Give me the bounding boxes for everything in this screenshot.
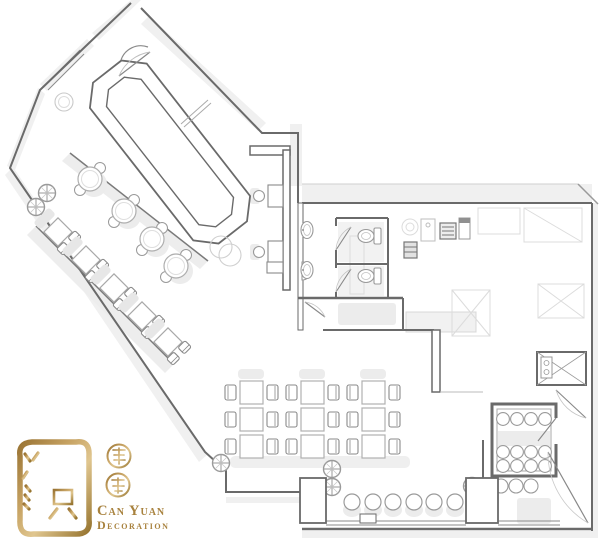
- medallion-glyphs: [107, 445, 131, 497]
- dining-set: [225, 381, 278, 404]
- bar-stool: [425, 494, 443, 517]
- dining-set: [347, 435, 400, 458]
- bar-stool: [446, 494, 464, 517]
- bar-stool: [343, 494, 361, 517]
- dining-set: [286, 408, 339, 431]
- dining-set: [347, 381, 400, 404]
- dining-set: [347, 408, 400, 431]
- toilet-icon: [358, 268, 381, 284]
- dining-set: [225, 435, 278, 458]
- toilet-icon: [358, 228, 381, 244]
- dining-set: [286, 435, 339, 458]
- dining-set: [286, 381, 339, 404]
- sink-icon: [301, 262, 313, 279]
- range-icon: [440, 223, 456, 239]
- brand-logo: Can Yuan Decoration 灿源 装饰: [14, 436, 192, 548]
- plant-icon: [55, 93, 73, 111]
- seal-strokes: [23, 446, 78, 520]
- column: [213, 455, 230, 472]
- dining-grid: [225, 381, 400, 458]
- appliance-icon: [459, 218, 470, 239]
- round-table: [161, 250, 194, 285]
- dumbwaiter: [537, 352, 586, 385]
- round-table: [137, 223, 170, 258]
- column: [28, 199, 45, 216]
- sink-icon: [301, 222, 313, 239]
- dining-set: [225, 408, 278, 431]
- bar-stool: [384, 494, 402, 517]
- brand-name: Can Yuan: [97, 504, 169, 519]
- column: [324, 461, 341, 478]
- brand-text: Can Yuan Decoration: [97, 504, 169, 533]
- bar-stool: [405, 494, 423, 517]
- column: [39, 185, 56, 202]
- floor-plan-page: Can Yuan Decoration 灿源 装饰: [0, 0, 600, 551]
- shelf-icon: [404, 242, 417, 258]
- wine-storage: [492, 404, 559, 493]
- brand-subtitle: Decoration: [97, 519, 169, 533]
